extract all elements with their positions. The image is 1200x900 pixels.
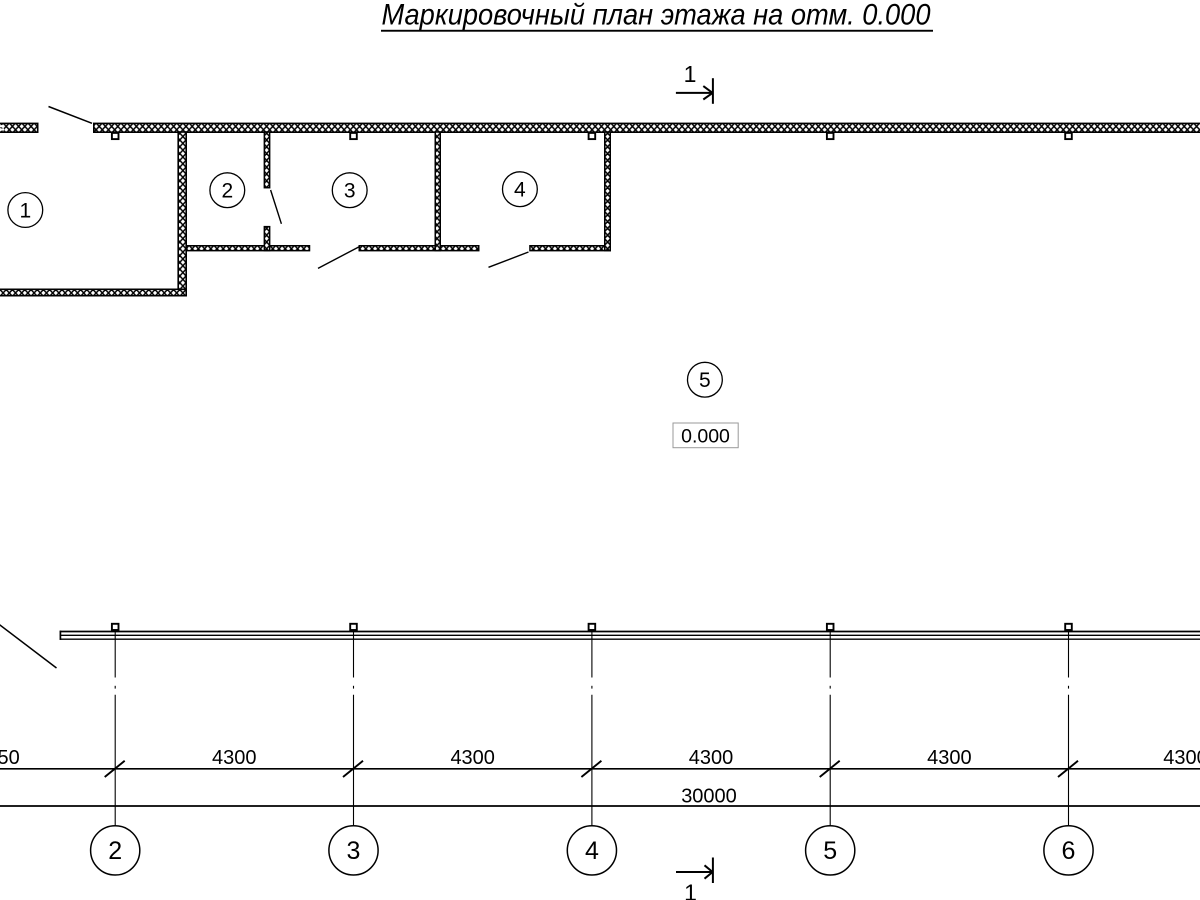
svg-text:4300: 4300: [1163, 747, 1200, 769]
svg-text:5: 5: [823, 837, 837, 865]
svg-text:1: 1: [684, 880, 697, 900]
svg-text:4300: 4300: [212, 747, 257, 769]
svg-text:4300: 4300: [927, 747, 972, 769]
svg-text:Маркировочный план этажа на от: Маркировочный план этажа на отм. 0.000: [382, 0, 931, 32]
svg-text:1: 1: [684, 61, 697, 87]
svg-text:30000: 30000: [681, 786, 737, 808]
svg-text:50: 50: [0, 747, 20, 769]
svg-text:2: 2: [221, 180, 233, 203]
svg-text:4300: 4300: [450, 747, 495, 769]
svg-text:0.000: 0.000: [681, 426, 730, 448]
svg-text:4: 4: [585, 837, 599, 865]
svg-text:3: 3: [344, 180, 356, 203]
svg-text:6: 6: [1062, 837, 1076, 865]
svg-text:1: 1: [19, 199, 31, 222]
svg-text:2: 2: [108, 837, 122, 865]
svg-text:5: 5: [699, 369, 711, 392]
svg-text:3: 3: [347, 837, 361, 865]
svg-text:4: 4: [514, 179, 526, 202]
svg-text:4300: 4300: [689, 747, 734, 769]
